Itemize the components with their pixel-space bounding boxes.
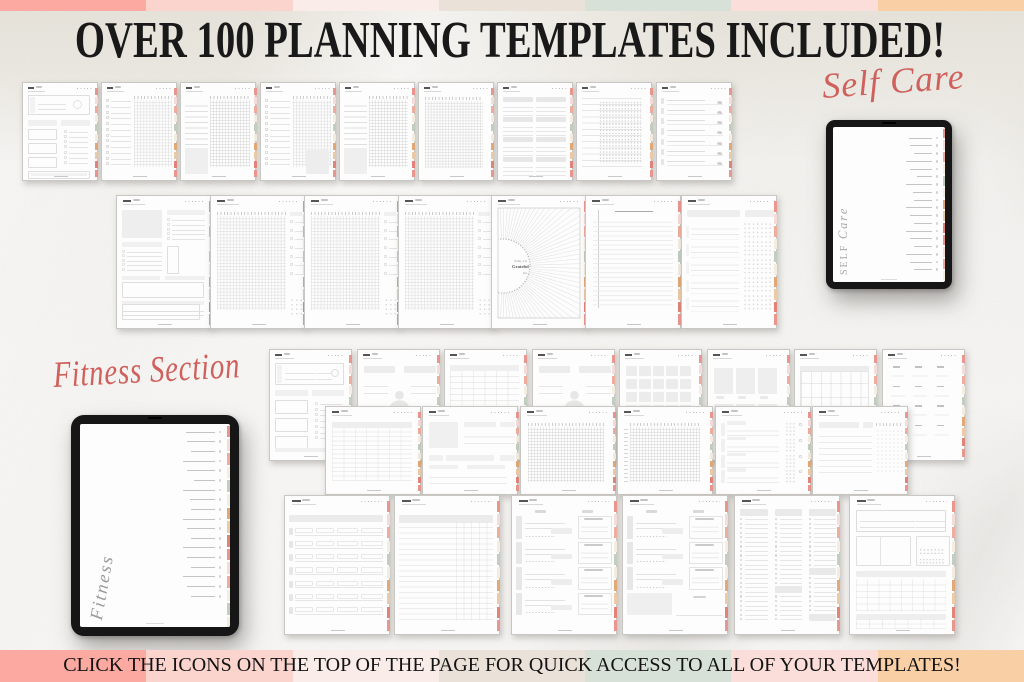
svg-text:for...: for... xyxy=(523,271,529,275)
svg-text:Grateful: Grateful xyxy=(512,264,530,269)
